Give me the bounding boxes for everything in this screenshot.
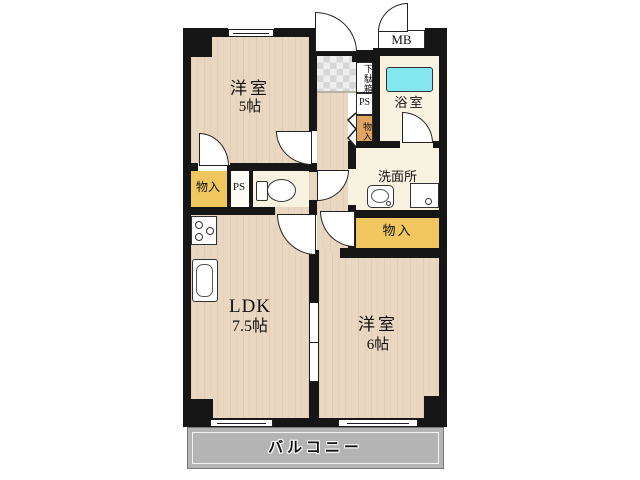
bedroom6-name-label: 洋室 xyxy=(338,316,418,335)
wall xyxy=(356,210,447,218)
wall xyxy=(309,250,319,302)
burner-icon xyxy=(206,227,214,235)
floorplan: 洋室 5帖 MB 下駄箱 PS 物入 浴室 洗面所 物入 PS 物入 LDK 7… xyxy=(0,0,640,480)
bedroom5-size-label: 5帖 xyxy=(210,99,290,116)
drain-icon xyxy=(425,198,432,205)
sliding-door xyxy=(309,302,319,382)
wall xyxy=(373,48,447,56)
washbasin xyxy=(367,185,394,208)
folding-door-icon xyxy=(346,112,358,150)
balcony-label: バルコニー xyxy=(187,440,444,457)
kitchen-sink xyxy=(192,259,218,302)
washing-machine-pan xyxy=(410,183,439,208)
storage-hall-label: 物入 xyxy=(189,181,227,194)
wall xyxy=(309,382,319,418)
wall xyxy=(183,28,191,427)
pipe-space-hall-label: PS xyxy=(229,181,249,193)
bedroom5-name-label: 洋室 xyxy=(210,80,290,99)
bathtub xyxy=(386,67,433,92)
meter-box-door-arc xyxy=(378,3,408,32)
window-ldk-balcony xyxy=(210,419,273,427)
entrance-genkan-floor xyxy=(317,56,356,93)
wall xyxy=(183,163,198,171)
doorway-patch xyxy=(309,172,317,200)
burner-icon xyxy=(195,221,203,229)
bedroom6-size-label: 6帖 xyxy=(338,337,418,354)
ldk-name-label: LDK xyxy=(200,297,300,318)
shoe-cabinet-label: 下駄箱 xyxy=(358,64,372,92)
wall xyxy=(433,141,447,148)
bathroom-label: 浴室 xyxy=(380,96,439,110)
wall-corner xyxy=(424,396,447,427)
burner-icon xyxy=(195,233,203,241)
washbasin-faucet xyxy=(386,201,391,206)
window-bedroom5 xyxy=(228,29,274,37)
wall xyxy=(373,50,380,141)
storage-entrance-label: 物入 xyxy=(359,119,371,145)
doorway-patch xyxy=(348,169,356,205)
window-bedroom6-balcony xyxy=(338,419,418,427)
storage-side-label: 物入 xyxy=(356,224,439,238)
wall xyxy=(309,200,317,215)
wall xyxy=(439,28,447,427)
kitchen-sink-basin xyxy=(196,264,213,297)
entrance-door-arc xyxy=(315,12,357,52)
ldk-size-label: 7.5帖 xyxy=(200,318,300,336)
meter-box-label: MB xyxy=(378,33,425,47)
wall xyxy=(340,248,447,258)
pipe-space-entrance-label: PS xyxy=(356,97,373,108)
washroom-label: 洗面所 xyxy=(356,170,439,184)
toilet-bowl xyxy=(267,179,296,202)
stove xyxy=(191,216,217,245)
wall xyxy=(249,165,253,215)
